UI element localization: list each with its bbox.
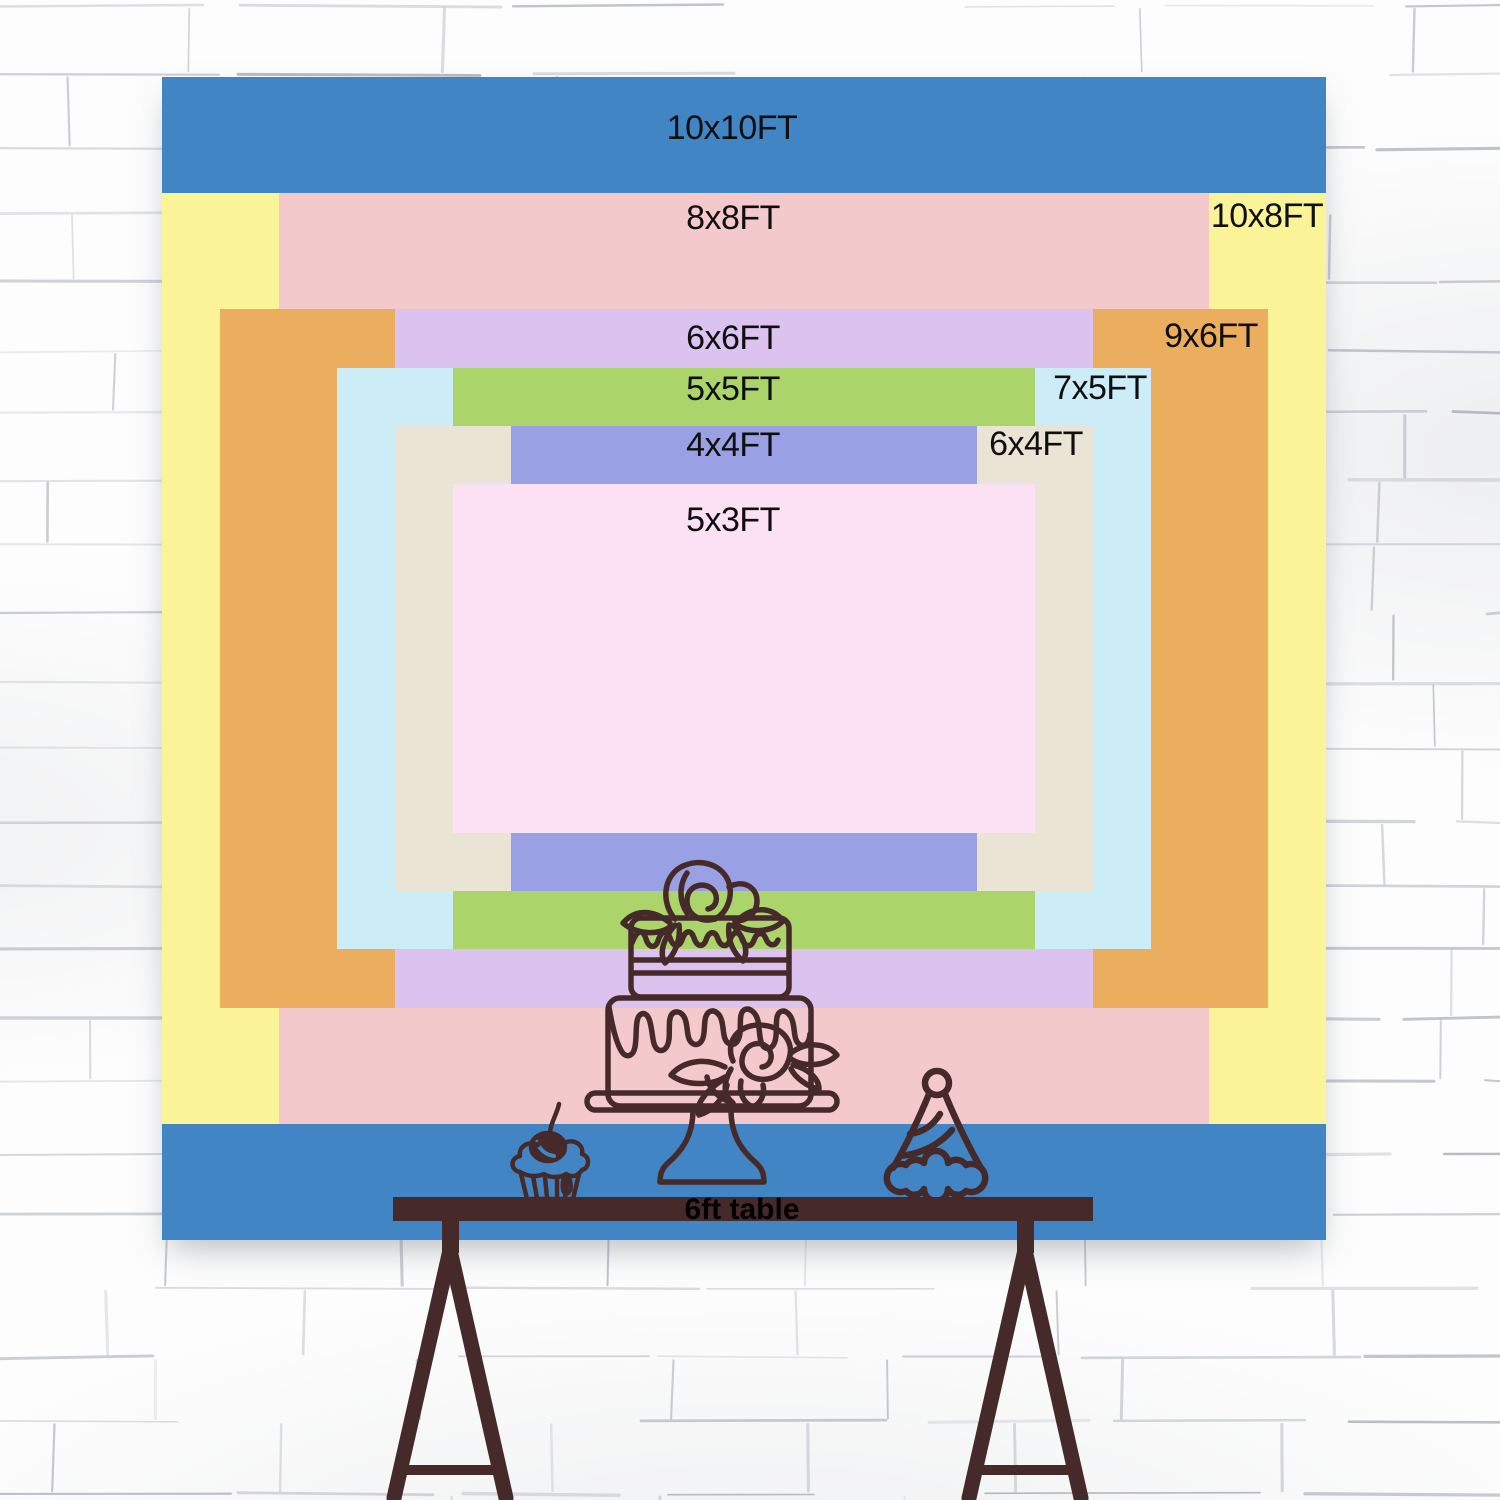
size-label-10x8: 10x8FT — [1211, 199, 1323, 233]
left-trestle-leg — [450, 1250, 506, 1498]
tiered-cake-icon — [575, 855, 855, 1205]
table-length-label: 6ft table — [684, 1195, 799, 1225]
left-trestle-leg — [394, 1250, 450, 1498]
right-trestle-leg — [1025, 1250, 1081, 1498]
size-label-7x5: 7x5FT — [1053, 371, 1147, 405]
size-label-10x10: 10x10FT — [667, 111, 798, 145]
size-label-5x5: 5x5FT — [686, 372, 780, 406]
cake-top-rose — [623, 863, 783, 963]
cupcake-icon — [500, 1098, 600, 1203]
trestle-table-icon — [355, 1192, 1115, 1500]
size-label-5x3: 5x3FT — [686, 503, 780, 537]
cherry-stem — [550, 1104, 559, 1132]
size-label-8x8: 8x8FT — [686, 201, 780, 235]
size-label-4x4: 4x4FT — [686, 428, 780, 462]
size-label-9x6: 9x6FT — [1164, 319, 1258, 353]
size-label-6x6: 6x6FT — [686, 321, 780, 355]
right-trestle-leg — [969, 1250, 1025, 1498]
size-label-6x4: 6x4FT — [989, 427, 1083, 461]
party-hat-icon — [876, 1058, 996, 1198]
backdrop-size-chart-image: 10x10FT10x8FT8x8FT9x6FT6x6FT7x5FT5x5FT6x… — [0, 0, 1500, 1500]
